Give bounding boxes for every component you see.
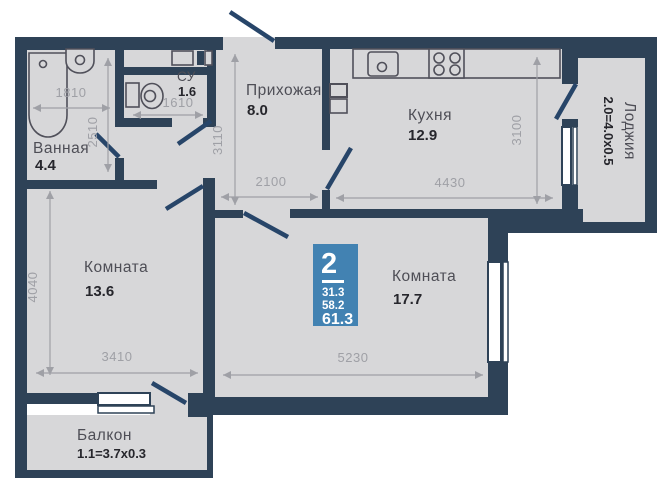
floor-plan: 1810 2510 1610 3110 2100 4430 3100 4040 … — [0, 0, 670, 493]
dim-label-2100: 2100 — [256, 174, 287, 189]
wall-kitchen-loggia-upper — [562, 49, 578, 84]
entrance-door-leaf — [230, 12, 274, 41]
stove-burner-icon — [450, 53, 460, 63]
wall-kitchen-room2 — [290, 209, 488, 218]
wall-kitchen-loggia-mid — [562, 119, 578, 127]
wall-top-left — [15, 37, 223, 50]
dim-label-1810: 1810 — [56, 85, 87, 100]
label-hall: Прихожая — [246, 82, 322, 99]
area-bathroom: 4.4 — [35, 157, 57, 174]
stove-burner-icon — [434, 53, 444, 63]
shaft-bar — [197, 51, 204, 65]
bath-sink-drain-icon — [76, 56, 85, 65]
label-wc: СУ — [177, 69, 196, 84]
toilet-drain-icon — [145, 91, 156, 102]
area-kitchen: 12.9 — [408, 127, 437, 144]
label-loggia: Лоджия — [621, 102, 638, 160]
label-room1: Комната — [84, 259, 148, 276]
wall-wc-bottom — [118, 118, 172, 127]
wall-room2-top-left — [210, 210, 243, 218]
dim-label-4430: 4430 — [435, 175, 466, 190]
badge-divider — [322, 280, 344, 283]
area-hall: 8.0 — [247, 102, 268, 119]
shaft-box-icon — [172, 51, 193, 65]
kitchen-sink-drain-icon — [378, 63, 387, 72]
label-room2: Комната — [392, 268, 456, 285]
label-balcony: Балкон — [77, 427, 132, 444]
dim-label-4040: 4040 — [25, 272, 40, 303]
badge-total-area: 61.3 — [322, 311, 353, 328]
badge-living-area: 31.3 — [322, 287, 344, 299]
loggia-window-inner — [573, 127, 577, 185]
shaft-box-small-icon — [205, 51, 212, 65]
room2-window-inner — [503, 262, 508, 362]
area-balcony: 1.1=3.7x0.3 — [77, 446, 146, 461]
wall-loggia-right — [645, 37, 657, 233]
stove-burner-icon — [434, 65, 444, 75]
wall-corner-block — [488, 209, 583, 233]
wall-left-outer — [15, 37, 27, 478]
area-loggia: 2.0=4.0x0.5 — [601, 96, 616, 165]
wall-room1-balcony — [15, 393, 98, 404]
wall-balcony-right — [207, 415, 213, 470]
wall-balcony-bottom — [15, 470, 213, 478]
wall-bathroom-right-stub — [115, 158, 124, 182]
floor-plan-canvas: 1810 2510 1610 3110 2100 4430 3100 4040 … — [0, 0, 670, 493]
badge-rooms-count: 2 — [321, 248, 337, 280]
apartment-badge: 2 31.3 58.2 61.3 — [313, 244, 358, 328]
area-wc: 1.6 — [178, 84, 196, 99]
dim-label-3100: 3100 — [509, 115, 524, 146]
wall-wc-top — [115, 67, 216, 75]
bathtub-drain-icon — [40, 61, 47, 68]
dim-label-3410: 3410 — [102, 349, 133, 364]
wall-top-right — [275, 37, 567, 49]
label-bathroom: Ванная — [33, 140, 89, 157]
vent-box-upper-icon — [330, 84, 347, 97]
wall-bottom — [213, 397, 508, 415]
dim-label-5230: 5230 — [338, 350, 369, 365]
toilet-tank-icon — [126, 83, 139, 107]
area-room2: 17.7 — [393, 291, 422, 308]
balcony-door-opening — [150, 393, 188, 417]
room2-window-outer — [488, 262, 501, 362]
dim-label-3110: 3110 — [210, 125, 225, 155]
loggia-window-outer — [562, 127, 571, 185]
wall-bathroom-bottom — [15, 180, 157, 189]
vent-box-lower-icon — [330, 99, 347, 113]
wall-hall-kitchen — [322, 45, 330, 150]
label-kitchen: Кухня — [408, 107, 452, 124]
stove-burner-icon — [450, 65, 460, 75]
wall-bathroom-right — [115, 49, 124, 127]
balcony-window-inner — [98, 406, 154, 413]
wall-balcony-right-block — [188, 393, 213, 417]
area-room1: 13.6 — [85, 283, 114, 300]
balcony-window-outer — [98, 393, 150, 405]
